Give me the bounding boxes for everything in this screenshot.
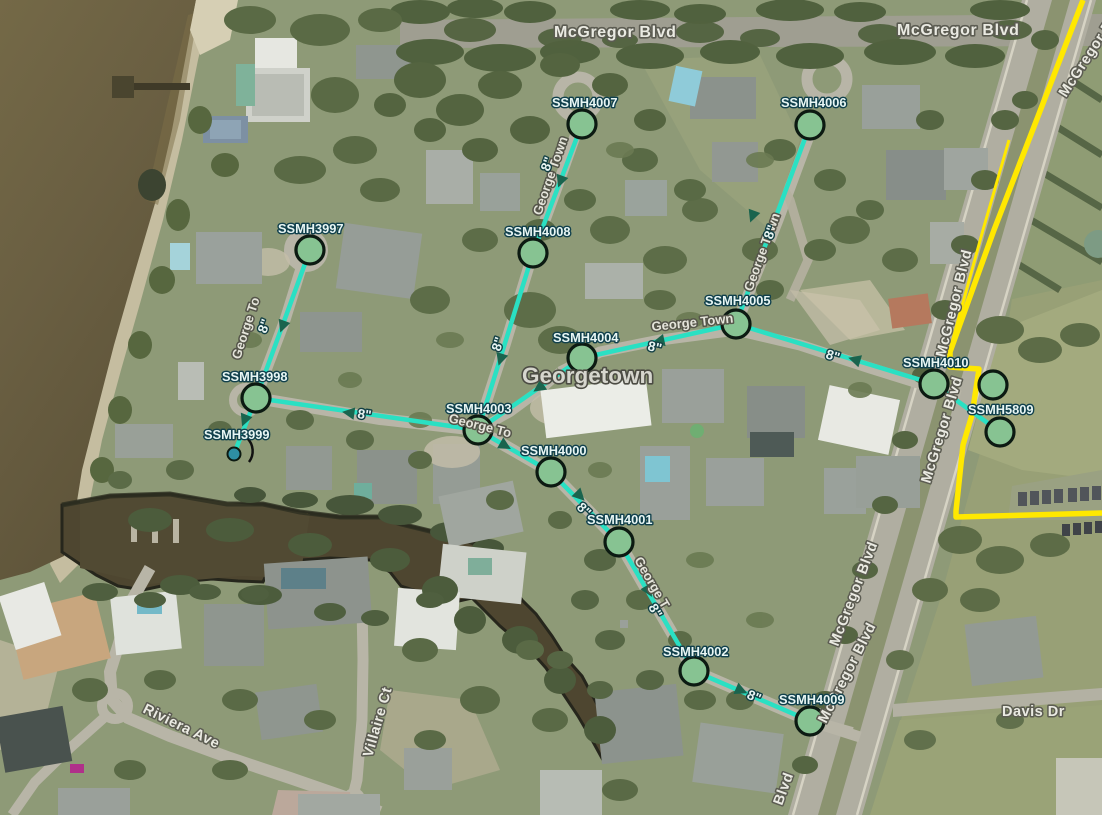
svg-text:McGregor Blvd: McGregor Blvd	[554, 24, 677, 41]
svg-text:SSMH4003: SSMH4003	[446, 401, 511, 416]
svg-text:SSMH3998: SSMH3998	[222, 369, 287, 384]
svg-text:SSMH4000: SSMH4000	[521, 443, 586, 458]
svg-text:SSMH5809: SSMH5809	[968, 402, 1033, 417]
svg-text:SSMH4001: SSMH4001	[587, 512, 652, 527]
svg-text:SSMH4008: SSMH4008	[505, 224, 570, 239]
svg-text:SSMH3997: SSMH3997	[278, 221, 343, 236]
svg-text:SSMH4002: SSMH4002	[663, 644, 728, 659]
svg-text:Georgetown: Georgetown	[522, 363, 653, 388]
svg-text:SSMH4010: SSMH4010	[903, 355, 968, 370]
svg-text:SSMH4005: SSMH4005	[705, 293, 770, 308]
svg-text:8": 8"	[357, 406, 373, 423]
svg-text:SSMH3999: SSMH3999	[204, 427, 269, 442]
svg-text:SSMH4004: SSMH4004	[553, 330, 619, 345]
svg-text:SSMH4006: SSMH4006	[781, 95, 846, 110]
svg-text:McGregor Blvd: McGregor Blvd	[897, 22, 1020, 39]
svg-text:SSMH4009: SSMH4009	[779, 692, 844, 707]
svg-text:Davis Dr: Davis Dr	[1002, 704, 1065, 720]
svg-text:SSMH4007: SSMH4007	[552, 95, 617, 110]
